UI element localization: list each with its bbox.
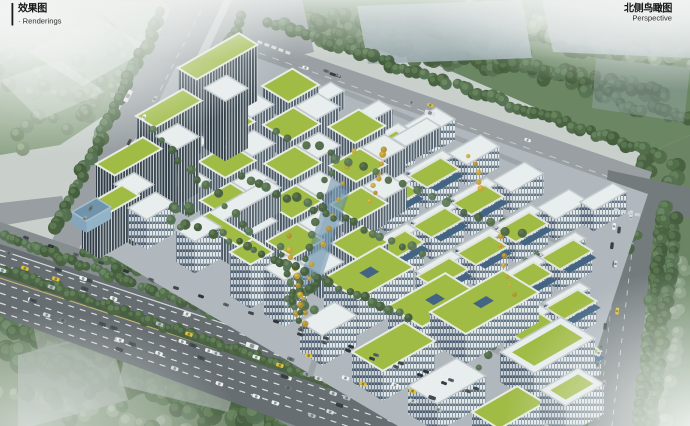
svg-text:效果图: 效果图 [18, 2, 47, 15]
svg-text:Perspective: Perspective [632, 14, 672, 23]
svg-text:· Renderings: · Renderings [18, 17, 62, 26]
